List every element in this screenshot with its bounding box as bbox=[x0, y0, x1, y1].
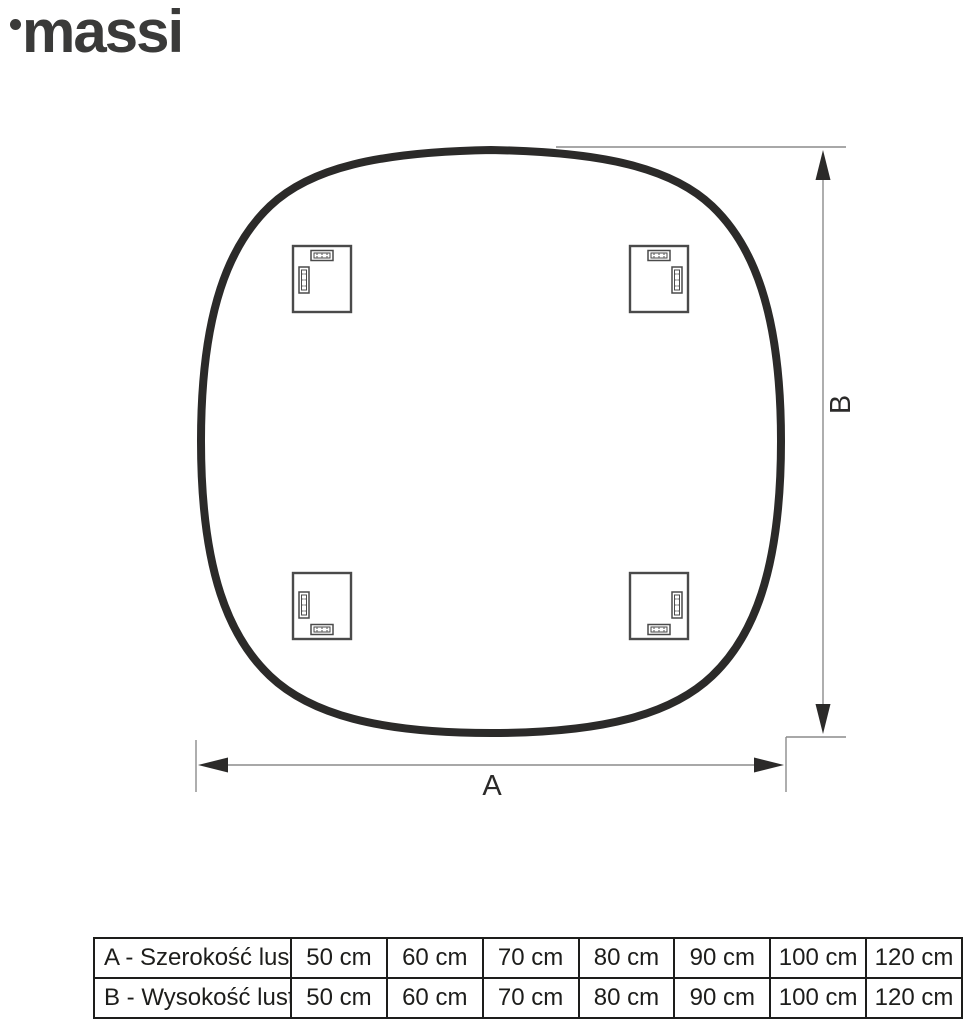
value-cell: 90 cm bbox=[674, 978, 770, 1018]
value-cell: 90 cm bbox=[674, 938, 770, 978]
value-cell: 50 cm bbox=[291, 938, 387, 978]
row-label-cell: A - Szerokość lustra bbox=[94, 938, 291, 978]
mounting-bracket-bottom-left bbox=[293, 573, 351, 639]
mounting-bracket-bottom-right bbox=[630, 573, 688, 639]
value-cell: 70 cm bbox=[483, 978, 579, 1018]
value-cell: 100 cm bbox=[770, 938, 866, 978]
value-cell: 120 cm bbox=[866, 978, 962, 1018]
row-label-cell: B - Wysokość lustra bbox=[94, 978, 291, 1018]
dimension-label-b: B bbox=[827, 395, 856, 414]
dimension-label-a: A bbox=[478, 772, 506, 801]
arrow-up-icon bbox=[816, 150, 831, 180]
value-cell: 70 cm bbox=[483, 938, 579, 978]
table-row: B - Wysokość lustra 50 cm 60 cm 70 cm 80… bbox=[94, 978, 962, 1018]
table-row: A - Szerokość lustra 50 cm 60 cm 70 cm 8… bbox=[94, 938, 962, 978]
value-cell: 60 cm bbox=[387, 978, 483, 1018]
value-cell: 80 cm bbox=[579, 938, 675, 978]
mirror-outline bbox=[201, 150, 781, 733]
spec-sheet: massi bbox=[0, 0, 976, 1020]
dimensions-table: A - Szerokość lustra 50 cm 60 cm 70 cm 8… bbox=[93, 937, 963, 1019]
value-cell: 120 cm bbox=[866, 938, 962, 978]
arrow-right-icon bbox=[754, 758, 784, 773]
value-cell: 100 cm bbox=[770, 978, 866, 1018]
arrow-left-icon bbox=[198, 758, 228, 773]
arrow-down-icon bbox=[816, 704, 831, 734]
value-cell: 80 cm bbox=[579, 978, 675, 1018]
mounting-bracket-top-left bbox=[293, 246, 351, 312]
value-cell: 50 cm bbox=[291, 978, 387, 1018]
value-cell: 60 cm bbox=[387, 938, 483, 978]
mounting-bracket-top-right bbox=[630, 246, 688, 312]
